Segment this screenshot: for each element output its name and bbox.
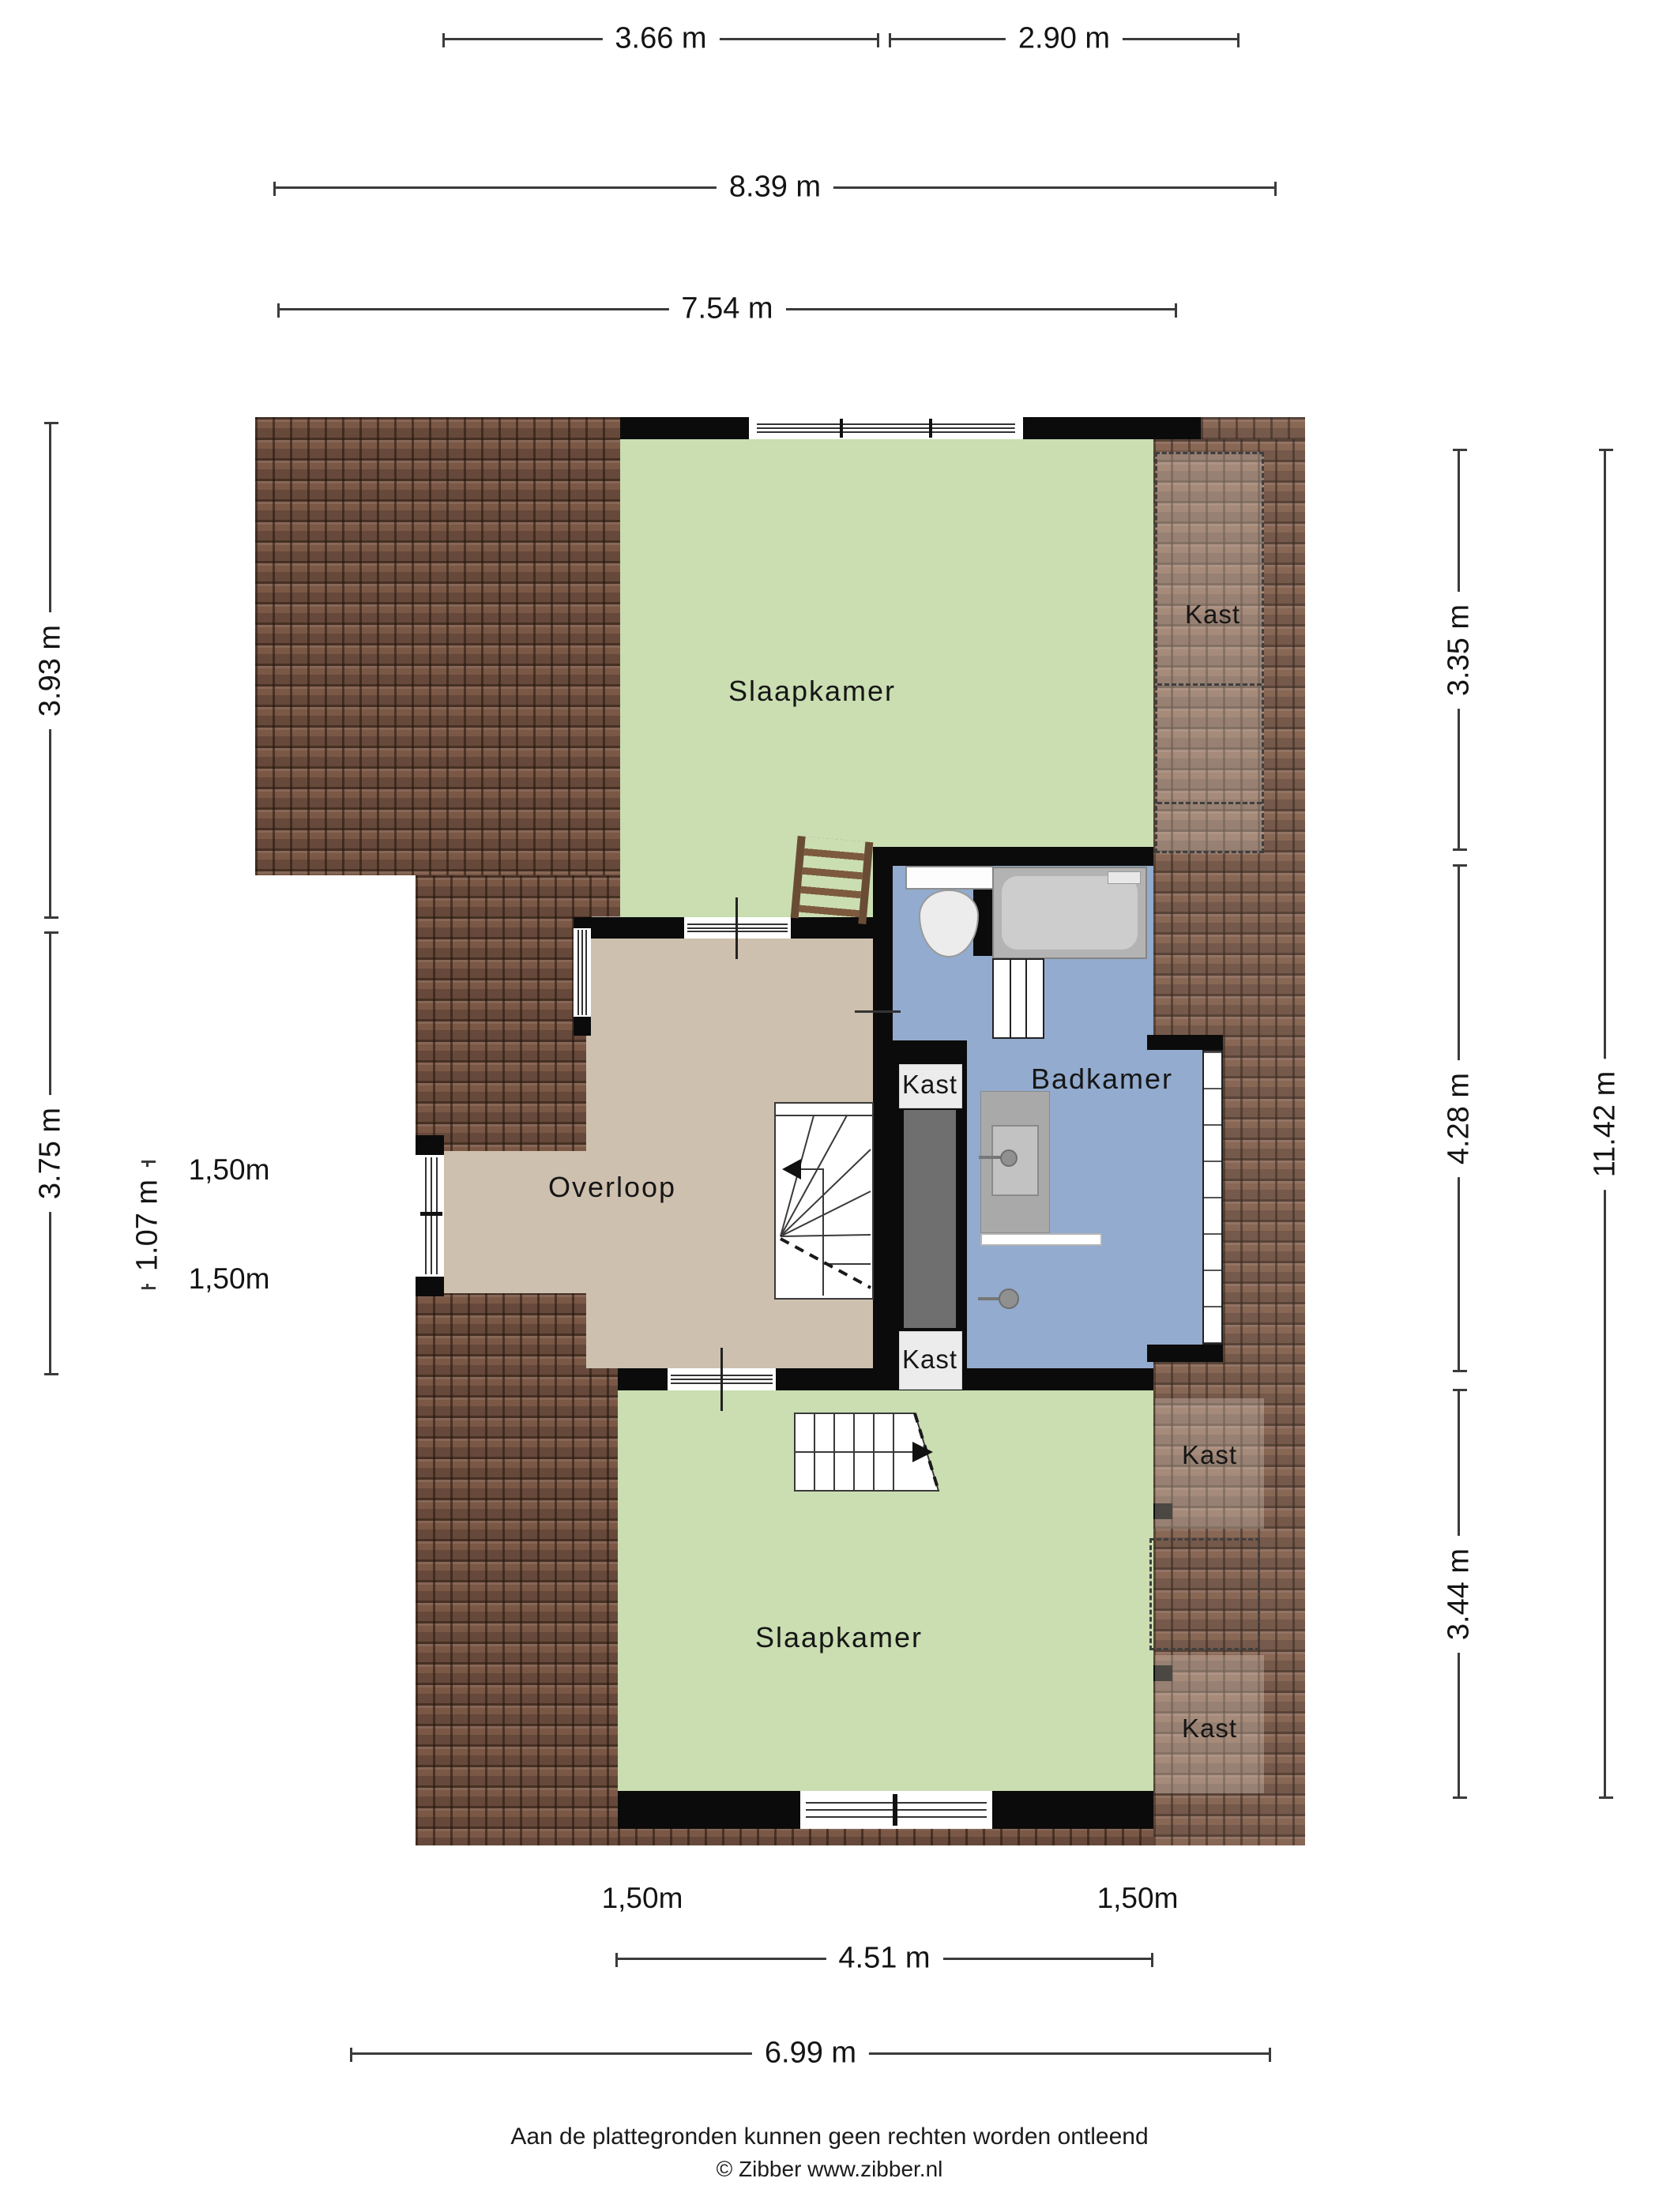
wall [574, 1017, 591, 1036]
duct-shaft [904, 1110, 956, 1328]
bathtub-tap-icon [1108, 871, 1141, 884]
dimension-float-label: 1,50m [189, 1262, 270, 1296]
dimension-top-2: 2.90 m [890, 38, 1238, 40]
room-label-bathroom: Badkamer [1031, 1063, 1173, 1096]
dimension-label: 6.99 m [752, 2037, 869, 2071]
dimension-bottom-2: 6.99 m [352, 2052, 1270, 2055]
winder-stair [774, 1102, 874, 1301]
window-glazing [425, 1157, 438, 1274]
dimension-label: 3.35 m [1443, 591, 1477, 708]
dimension-label: 3.44 m [1443, 1535, 1477, 1652]
dimension-right-2: 4.28 m [1458, 866, 1460, 1371]
bathtub-icon [992, 867, 1147, 959]
wall [416, 1277, 444, 1296]
footer-disclaimer: Aan de plattegronden kunnen geen rechten… [0, 2124, 1659, 2150]
window-divider [840, 419, 843, 438]
window-tick [720, 1348, 723, 1411]
closet-zone-dashed [1149, 1538, 1260, 1650]
floorplan-page: Slaapkamer Kast Badkamer Overloop Kast K… [0, 0, 1659, 2212]
straight-stair [794, 1413, 941, 1492]
wall [873, 847, 1153, 866]
dimension-float-label: 1,50m [189, 1153, 270, 1187]
dimension-label: 7.54 m [668, 292, 785, 326]
window-divider [929, 419, 932, 438]
wall [618, 1791, 800, 1829]
dimension-label: 8.39 m [717, 171, 833, 205]
wall [416, 1135, 444, 1155]
dimension-label: 2.90 m [1006, 22, 1123, 56]
bathtub-basin [1002, 876, 1138, 950]
dimension-top-4: 7.54 m [279, 308, 1176, 310]
dimension-left-3: 1.07 m [146, 1162, 149, 1288]
wall [992, 1791, 1153, 1829]
room-label-bedroom-top: Slaapkamer [728, 675, 896, 708]
dimension-bottom-1: 4.51 m [617, 1958, 1152, 1960]
wall [1023, 417, 1201, 439]
window-tick [735, 897, 738, 959]
window-glazing [577, 930, 586, 1015]
dimension-right-3: 3.44 m [1458, 1390, 1460, 1797]
room-label-closet-right-lower: Kast [1182, 1714, 1237, 1744]
room-label-closet-right-upper: Kast [1182, 1440, 1237, 1470]
dimension-float-label: 1,50m [1097, 1882, 1179, 1915]
room-label-closet-mid-top: Kast [902, 1070, 957, 1100]
room-label-closet-mid-bottom: Kast [902, 1345, 957, 1375]
dimension-label: 4.28 m [1443, 1059, 1477, 1176]
closet-zone-divider [1157, 683, 1262, 686]
faucet-icon [999, 1288, 1019, 1309]
window-divider [893, 1794, 897, 1826]
wall [873, 847, 893, 1368]
room-label-bedroom-bottom: Slaapkamer [755, 1621, 923, 1654]
closet-zone-divider [1157, 802, 1262, 804]
dimension-right-4: 11.42 m [1604, 450, 1606, 1797]
window-glazing [757, 423, 1014, 432]
door-tick [855, 1010, 901, 1013]
roof-bottom-left [416, 1292, 618, 1845]
room-label-landing: Overloop [548, 1171, 676, 1204]
closet-zone-top-right [1155, 452, 1264, 853]
dimension-label: 3.66 m [602, 22, 719, 56]
window [800, 1791, 992, 1829]
roof-top-right-sliver [1201, 417, 1305, 439]
dimension-right-1: 3.35 m [1458, 450, 1460, 849]
room-label-closet-top-right: Kast [1185, 600, 1240, 630]
window-divider [420, 1212, 442, 1216]
faucet-arm-icon [979, 1156, 1003, 1159]
window [574, 928, 591, 1017]
shower-screen-icon [992, 958, 1044, 1039]
dimension-top-1: 3.66 m [444, 38, 878, 40]
shower-partition-icon [980, 1233, 1102, 1246]
dimension-label: 11.42 m [1589, 1058, 1623, 1189]
dimension-label: 1.07 m [131, 1166, 165, 1283]
toilet-icon [905, 866, 994, 890]
dimension-left-2: 3.75 m [49, 933, 51, 1374]
dimension-label: 3.75 m [34, 1095, 68, 1212]
window [749, 417, 1023, 439]
window [419, 1155, 444, 1277]
loft-ladder-icon [791, 836, 874, 924]
faucet-icon [1000, 1149, 1018, 1167]
wall [1147, 1345, 1223, 1362]
wall [620, 417, 749, 439]
dimension-label: 3.93 m [34, 611, 68, 728]
wall [1147, 1035, 1223, 1050]
dimension-label: 4.51 m [826, 1942, 942, 1976]
dimension-float-label: 1,50m [602, 1882, 683, 1915]
dimension-top-3: 8.39 m [275, 186, 1275, 189]
roof-top-left [255, 417, 620, 875]
window [1202, 1050, 1223, 1345]
roof-mid-right [1223, 1035, 1305, 1362]
dimension-left-1: 3.93 m [49, 423, 51, 917]
bedroom-top-floor [620, 439, 1153, 847]
footer-copyright: © Zibber www.zibber.nl [0, 2157, 1659, 2182]
